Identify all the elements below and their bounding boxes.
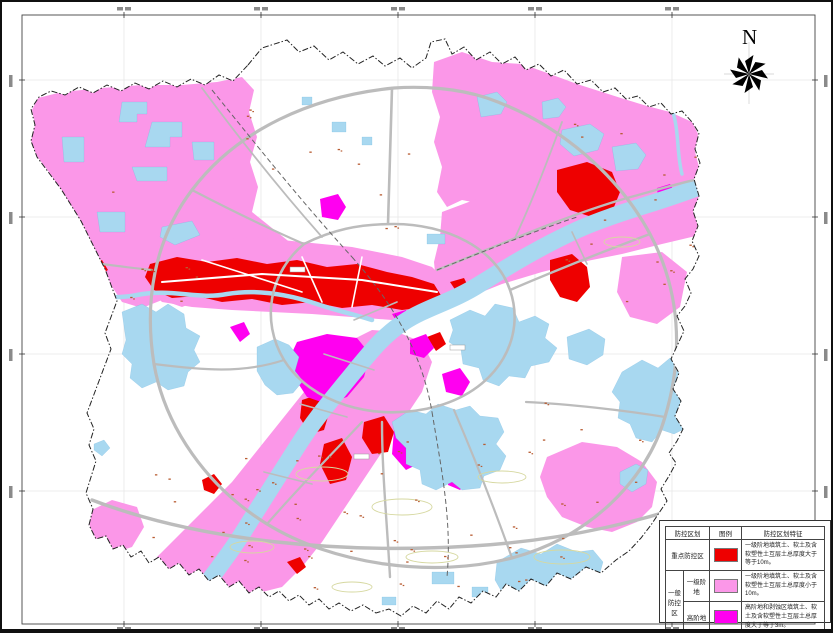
legend-swatch-cell [710, 571, 742, 602]
grid-tick-label [536, 7, 542, 11]
legend-swatch-cell [710, 540, 742, 571]
grid-tick-label [117, 7, 123, 11]
road-label-box [354, 454, 369, 459]
swatch-pink [714, 579, 738, 593]
north-label: N [742, 25, 757, 49]
legend-header-feature: 防控区划特征 [742, 527, 825, 540]
grid-tick-label [824, 355, 828, 361]
grid-tick-label [528, 627, 534, 631]
grid-tick-label [824, 349, 828, 355]
grid-tick-label [399, 627, 405, 631]
map-sheet: N 防控区划 图例 防控区划特征 重点防控区 一级阶地填筑土、软土及含软塑性土互… [0, 0, 833, 633]
grid-tick-label [9, 81, 13, 87]
grid-tick-label [9, 355, 13, 361]
legend-desc-first-terrace: 一级阶地填筑土、软土及含软塑性土互层土总厚度小于10m。 [742, 571, 825, 602]
grid-tick-label [9, 75, 13, 81]
road-label-box [450, 345, 465, 350]
grid-tick-label [125, 627, 131, 631]
legend-row-key-zone: 重点防控区 一级阶地填筑土、软土及含软塑性土互层土总厚度大于等于10m。 [666, 540, 825, 571]
swatch-red [714, 548, 738, 562]
legend-sub-first-terrace: 一级阶地 [684, 571, 710, 602]
grid-tick-label [824, 212, 828, 218]
map-body [31, 52, 715, 606]
grid-tick-label [399, 7, 405, 11]
grid-tick-label [536, 627, 542, 631]
legend-zone-key: 重点防控区 [666, 540, 710, 571]
grid-tick-label [262, 627, 268, 631]
grid-tick-label [9, 212, 13, 218]
legend-zone-general: 一般防控区 [666, 571, 684, 633]
legend-panel: 防控区划 图例 防控区划特征 重点防控区 一级阶地填筑土、软土及含软塑性土互层土… [659, 520, 831, 623]
grid-tick-label [824, 492, 828, 498]
grid-tick-label [254, 627, 260, 631]
grid-tick-label [824, 486, 828, 492]
grid-tick-label [9, 492, 13, 498]
grid-tick-label [9, 486, 13, 492]
grid-tick-label [254, 7, 260, 11]
grid-tick-label [673, 7, 679, 11]
legend-swatch-cell [710, 602, 742, 633]
legend-header-row: 防控区划 图例 防控区划特征 [666, 527, 825, 540]
grid-tick-label [9, 349, 13, 355]
swatch-magenta [714, 610, 738, 624]
legend-table: 防控区划 图例 防控区划特征 重点防控区 一级阶地填筑土、软土及含软塑性土互层土… [665, 526, 825, 633]
legend-row-high-terrace: 高阶地 高阶地和剥蚀区填筑土、软土及含软塑性土互层土总厚度大于等于3m。 [666, 602, 825, 633]
grid-tick-label [391, 627, 397, 631]
grid-tick-label [262, 7, 268, 11]
legend-desc-high-terrace: 高阶地和剥蚀区填筑土、软土及含软塑性土互层土总厚度大于等于3m。 [742, 602, 825, 633]
grid-tick-label [528, 7, 534, 11]
grid-tick-label [824, 75, 828, 81]
grid-tick-label [9, 218, 13, 224]
north-arrow: N [724, 25, 774, 104]
grid-tick-label [117, 627, 123, 631]
grid-tick-label [824, 218, 828, 224]
grid-tick-label [824, 81, 828, 87]
legend-sub-high-terrace: 高阶地 [684, 602, 710, 633]
road-label-box [290, 267, 305, 272]
legend-header-symbol: 图例 [710, 527, 742, 540]
legend-desc-key: 一级阶地填筑土、软土及含软塑性土互层土总厚度大于等于10m。 [742, 540, 825, 571]
legend-row-first-terrace: 一般防控区 一级阶地 一级阶地填筑土、软土及含软塑性土互层土总厚度小于10m。 [666, 571, 825, 602]
grid-tick-label [391, 7, 397, 11]
grid-tick-label [665, 7, 671, 11]
legend-header-zoning: 防控区划 [666, 527, 710, 540]
compass-star-icon [730, 55, 768, 93]
grid-tick-label [125, 7, 131, 11]
